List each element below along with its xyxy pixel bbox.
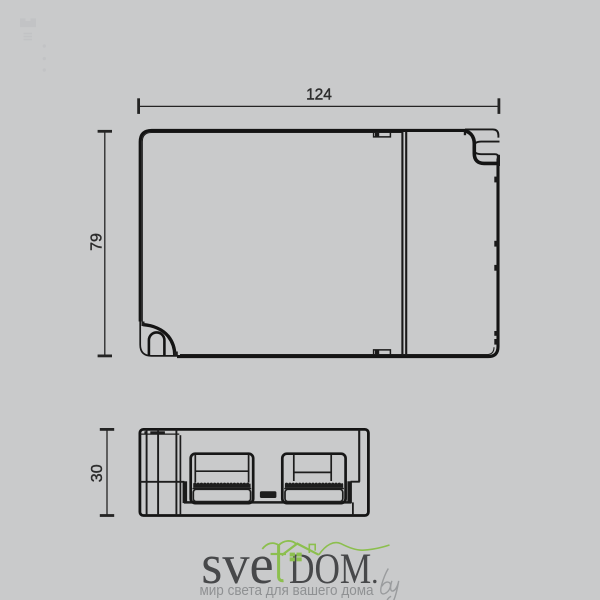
svg-text:124: 124 (306, 87, 332, 104)
svg-text:79: 79 (89, 233, 106, 251)
svg-text:30: 30 (89, 464, 106, 482)
svg-text:мир света для вашего дома: мир света для вашего дома (199, 581, 373, 597)
